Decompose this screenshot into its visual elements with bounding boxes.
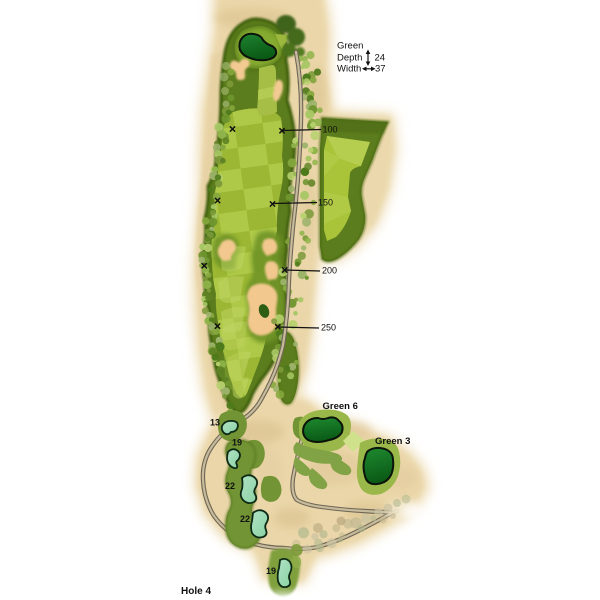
svg-text:Green 6: Green 6 xyxy=(323,401,358,412)
svg-text:22: 22 xyxy=(240,514,250,524)
svg-text:13: 13 xyxy=(210,418,220,428)
svg-text:150: 150 xyxy=(318,198,333,208)
svg-text:19: 19 xyxy=(232,438,242,448)
svg-text:200: 200 xyxy=(322,266,337,276)
svg-text:37: 37 xyxy=(375,64,386,75)
svg-text:22: 22 xyxy=(225,481,235,491)
svg-text:Width: Width xyxy=(337,64,361,75)
svg-text:Hole 4: Hole 4 xyxy=(181,586,211,597)
svg-text:Depth: Depth xyxy=(337,53,362,64)
svg-text:Green: Green xyxy=(337,41,363,52)
svg-text:19: 19 xyxy=(266,566,276,576)
svg-text:250: 250 xyxy=(321,323,336,333)
svg-text:Green 3: Green 3 xyxy=(375,436,410,447)
svg-text:100: 100 xyxy=(323,125,338,135)
svg-text:24: 24 xyxy=(375,53,386,64)
